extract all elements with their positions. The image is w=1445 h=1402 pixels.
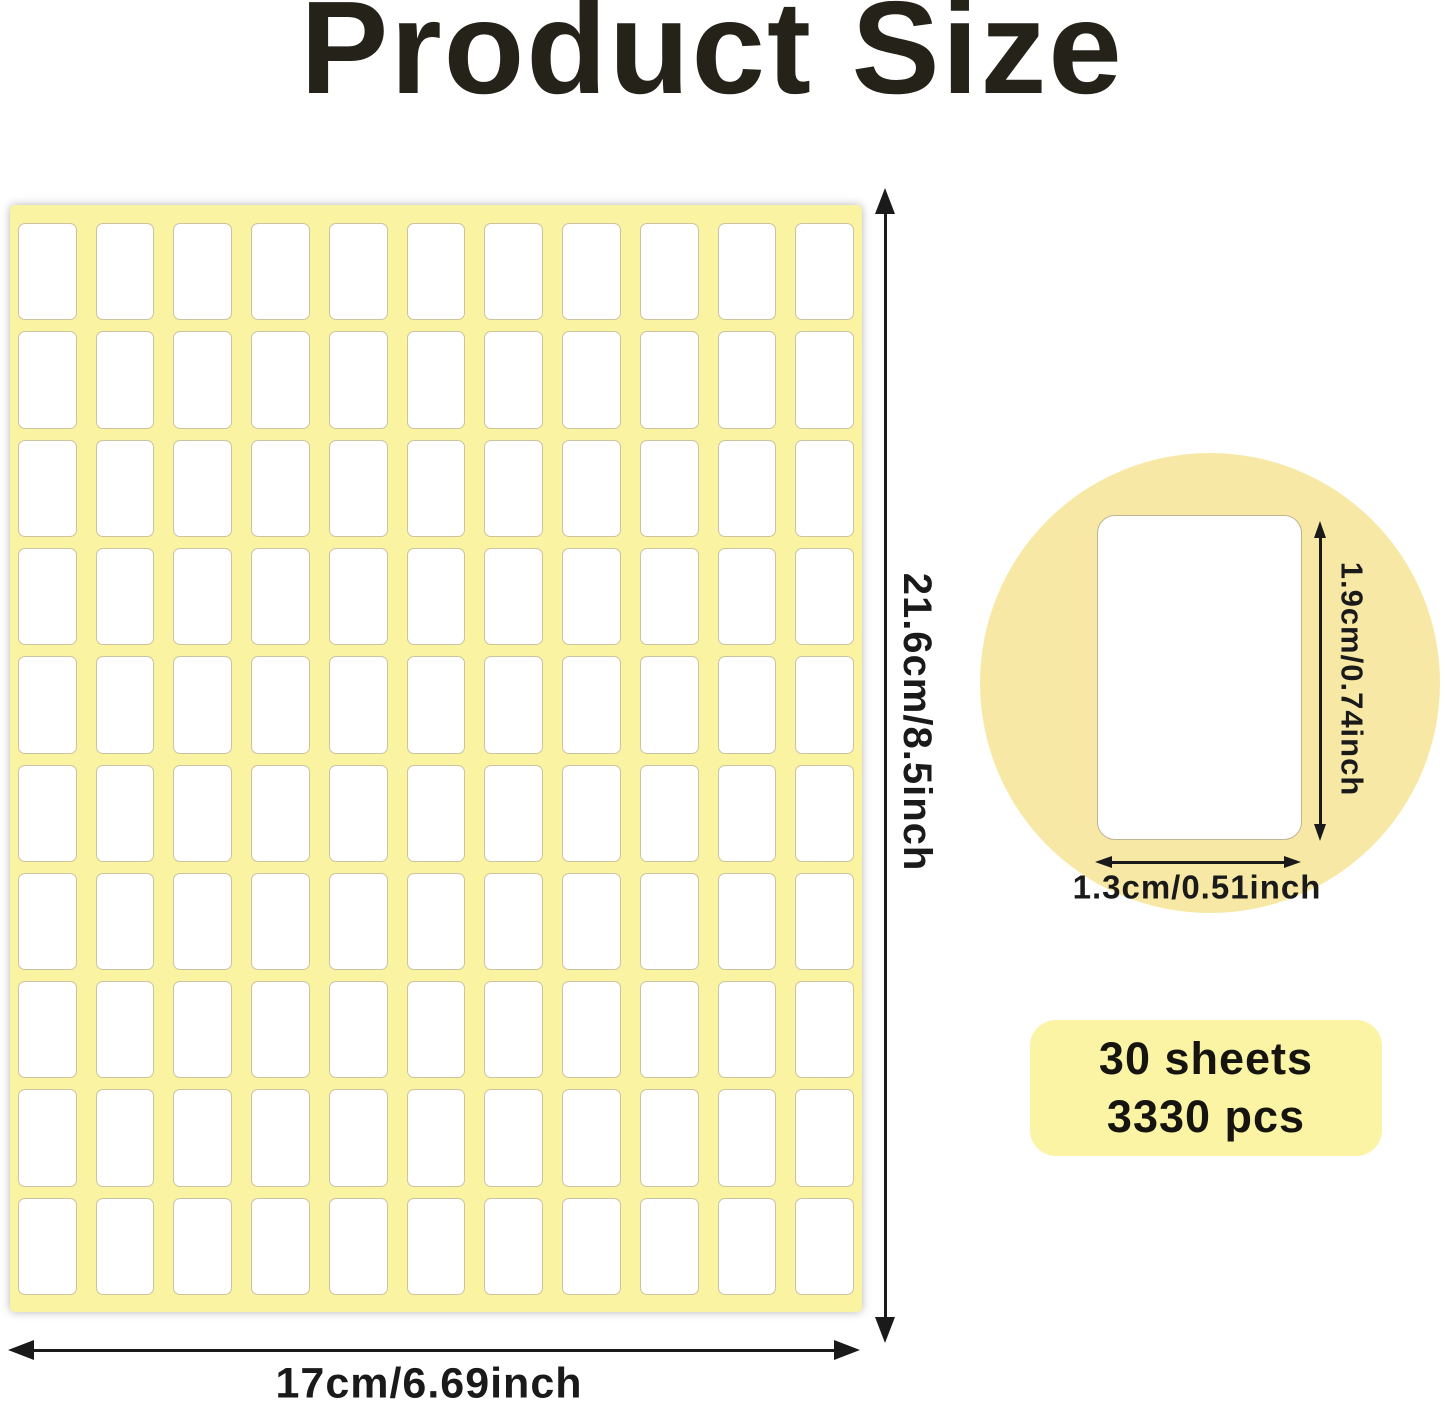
label-sticker-cell <box>718 981 777 1078</box>
label-sticker-cell <box>96 981 155 1078</box>
label-sticker-cell <box>718 548 777 645</box>
arrow-right-icon <box>1284 856 1301 868</box>
label-sticker-cell <box>329 656 388 753</box>
label-sticker-cell <box>562 873 621 970</box>
pieces-count-text: 3330 pcs <box>1107 1088 1305 1146</box>
label-sticker-cell <box>407 1198 466 1295</box>
label-sticker-cell <box>173 656 232 753</box>
label-sticker-cell <box>329 331 388 428</box>
label-sticker-cell <box>18 1089 77 1186</box>
label-sticker-cell <box>251 223 310 320</box>
label-sticker-cell <box>18 440 77 537</box>
label-sticker-cell <box>795 981 854 1078</box>
label-sticker-cell <box>484 1198 543 1295</box>
arrow-left-icon <box>1095 856 1112 868</box>
label-sticker-cell <box>407 440 466 537</box>
sheet-width-label: 17cm/6.69inch <box>275 1363 582 1402</box>
label-sticker-cell <box>251 331 310 428</box>
label-sticker-cell <box>640 331 699 428</box>
sheets-count-text: 30 sheets <box>1099 1030 1313 1088</box>
label-sticker-cell <box>18 981 77 1078</box>
label-sticker-cell <box>18 765 77 862</box>
label-sheet-grid <box>18 223 854 1295</box>
label-sticker-cell <box>640 656 699 753</box>
label-sticker-cell <box>795 765 854 862</box>
label-sticker-cell <box>407 981 466 1078</box>
label-sticker-cell <box>173 1198 232 1295</box>
label-sticker-cell <box>96 1089 155 1186</box>
label-sticker-cell <box>640 548 699 645</box>
label-sticker-cell <box>329 873 388 970</box>
label-sticker-cell <box>562 656 621 753</box>
label-sticker-cell <box>484 331 543 428</box>
label-sticker-cell <box>329 548 388 645</box>
label-sticker-cell <box>329 223 388 320</box>
label-sticker-cell <box>718 1089 777 1186</box>
detail-label-sticker <box>1097 515 1302 840</box>
label-sticker-cell <box>96 548 155 645</box>
label-sticker-cell <box>251 548 310 645</box>
label-sticker-cell <box>251 656 310 753</box>
label-sticker-cell <box>173 440 232 537</box>
label-sticker-cell <box>407 223 466 320</box>
arrow-up-icon <box>875 188 895 214</box>
label-sticker-cell <box>407 1089 466 1186</box>
label-sticker-cell <box>173 331 232 428</box>
label-sticker-cell <box>251 1089 310 1186</box>
pack-count-badge: 30 sheets 3330 pcs <box>1030 1020 1382 1156</box>
detail-height-arrow <box>1311 521 1329 841</box>
label-sticker-cell <box>795 223 854 320</box>
label-sticker-cell <box>795 656 854 753</box>
label-sticker-cell <box>96 873 155 970</box>
label-sticker-cell <box>173 1089 232 1186</box>
arrow-right-icon <box>834 1340 860 1360</box>
label-sticker-cell <box>718 765 777 862</box>
label-sticker-cell <box>96 1198 155 1295</box>
label-sticker-cell <box>96 656 155 753</box>
label-sticker-cell <box>18 656 77 753</box>
label-sticker-cell <box>329 1198 388 1295</box>
label-sticker-cell <box>562 1089 621 1186</box>
label-sticker-cell <box>795 1198 854 1295</box>
label-sticker-cell <box>173 765 232 862</box>
label-sticker-cell <box>640 223 699 320</box>
label-sticker-cell <box>96 765 155 862</box>
label-sticker-cell <box>251 1198 310 1295</box>
label-sticker-cell <box>18 873 77 970</box>
label-sticker-cell <box>329 440 388 537</box>
label-sticker-cell <box>484 440 543 537</box>
label-sticker-cell <box>173 223 232 320</box>
label-sticker-cell <box>329 1089 388 1186</box>
label-sticker-cell <box>640 765 699 862</box>
label-sticker-cell <box>562 765 621 862</box>
label-sticker-cell <box>795 1089 854 1186</box>
label-sticker-cell <box>18 331 77 428</box>
label-sticker-cell <box>562 981 621 1078</box>
label-sticker-cell <box>484 765 543 862</box>
label-sticker-cell <box>562 331 621 428</box>
label-sticker-cell <box>18 223 77 320</box>
label-sticker-cell <box>173 981 232 1078</box>
label-sticker-cell <box>18 1198 77 1295</box>
label-sticker-cell <box>718 440 777 537</box>
label-sticker-cell <box>718 873 777 970</box>
label-sticker-cell <box>484 548 543 645</box>
label-sticker-cell <box>562 440 621 537</box>
label-sticker-cell <box>251 981 310 1078</box>
label-sticker-cell <box>484 981 543 1078</box>
label-sticker-cell <box>795 440 854 537</box>
arrow-up-icon <box>1314 521 1326 538</box>
arrow-down-icon <box>875 1317 895 1343</box>
sheet-height-label: 21.6cm/8.5inch <box>897 573 937 872</box>
label-sticker-cell <box>718 331 777 428</box>
label-sheet <box>10 205 862 1312</box>
label-sticker-cell <box>562 223 621 320</box>
label-sticker-cell <box>795 331 854 428</box>
label-sticker-cell <box>18 548 77 645</box>
label-sticker-cell <box>407 331 466 428</box>
label-sticker-cell <box>96 440 155 537</box>
sheet-width-arrow <box>8 1340 860 1360</box>
arrow-down-icon <box>1314 824 1326 841</box>
label-sticker-cell <box>407 765 466 862</box>
label-sticker-cell <box>484 656 543 753</box>
label-sticker-cell <box>640 1089 699 1186</box>
label-sticker-cell <box>562 1198 621 1295</box>
arrow-line <box>1319 538 1322 824</box>
detail-height-label: 1.9cm/0.74inch <box>1337 562 1368 797</box>
label-sticker-cell <box>251 440 310 537</box>
label-sticker-cell <box>173 873 232 970</box>
label-sticker-cell <box>718 656 777 753</box>
product-size-infographic: Product Size 21.6cm/8.5inch 17cm/6.69inc… <box>0 0 1445 1402</box>
label-sticker-cell <box>96 331 155 428</box>
label-sticker-cell <box>251 765 310 862</box>
arrow-left-icon <box>8 1340 34 1360</box>
label-sticker-cell <box>718 1198 777 1295</box>
label-sticker-cell <box>329 981 388 1078</box>
label-sticker-cell <box>407 873 466 970</box>
label-sticker-cell <box>329 765 388 862</box>
label-sticker-cell <box>640 873 699 970</box>
label-sticker-cell <box>562 548 621 645</box>
arrow-line <box>884 214 887 1317</box>
label-sticker-cell <box>173 548 232 645</box>
label-sticker-cell <box>407 548 466 645</box>
label-sticker-cell <box>484 1089 543 1186</box>
arrow-line <box>1112 861 1284 864</box>
label-sticker-cell <box>484 873 543 970</box>
label-sticker-cell <box>96 223 155 320</box>
label-sticker-cell <box>795 548 854 645</box>
label-sticker-cell <box>795 873 854 970</box>
page-title: Product Size <box>0 0 1424 114</box>
label-sticker-cell <box>251 873 310 970</box>
label-sticker-cell <box>640 1198 699 1295</box>
label-sticker-cell <box>640 440 699 537</box>
detail-width-label: 1.3cm/0.51inch <box>1073 871 1322 904</box>
arrow-line <box>34 1349 834 1352</box>
label-sticker-cell <box>407 656 466 753</box>
label-sticker-cell <box>640 981 699 1078</box>
sheet-height-arrow <box>875 188 895 1343</box>
label-sticker-cell <box>484 223 543 320</box>
label-sticker-cell <box>718 223 777 320</box>
